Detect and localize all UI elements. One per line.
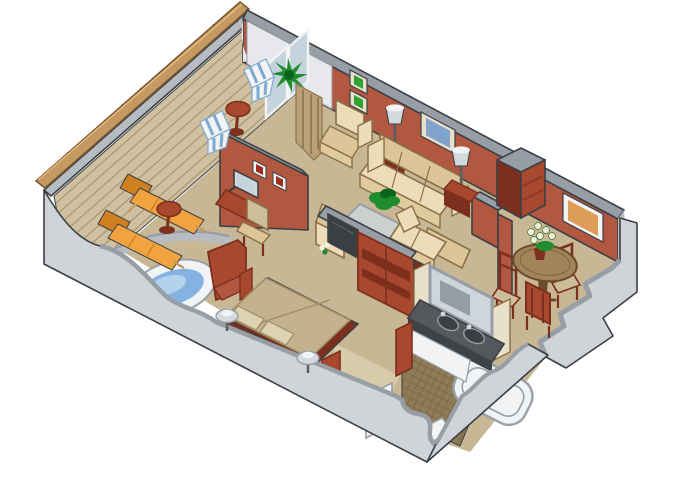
floorplan-illustration	[0, 0, 680, 486]
corner-etagere	[497, 148, 545, 218]
floorplan-svg	[0, 0, 680, 486]
corridor-wall-red-2	[396, 322, 412, 376]
armchair-red	[208, 240, 252, 300]
